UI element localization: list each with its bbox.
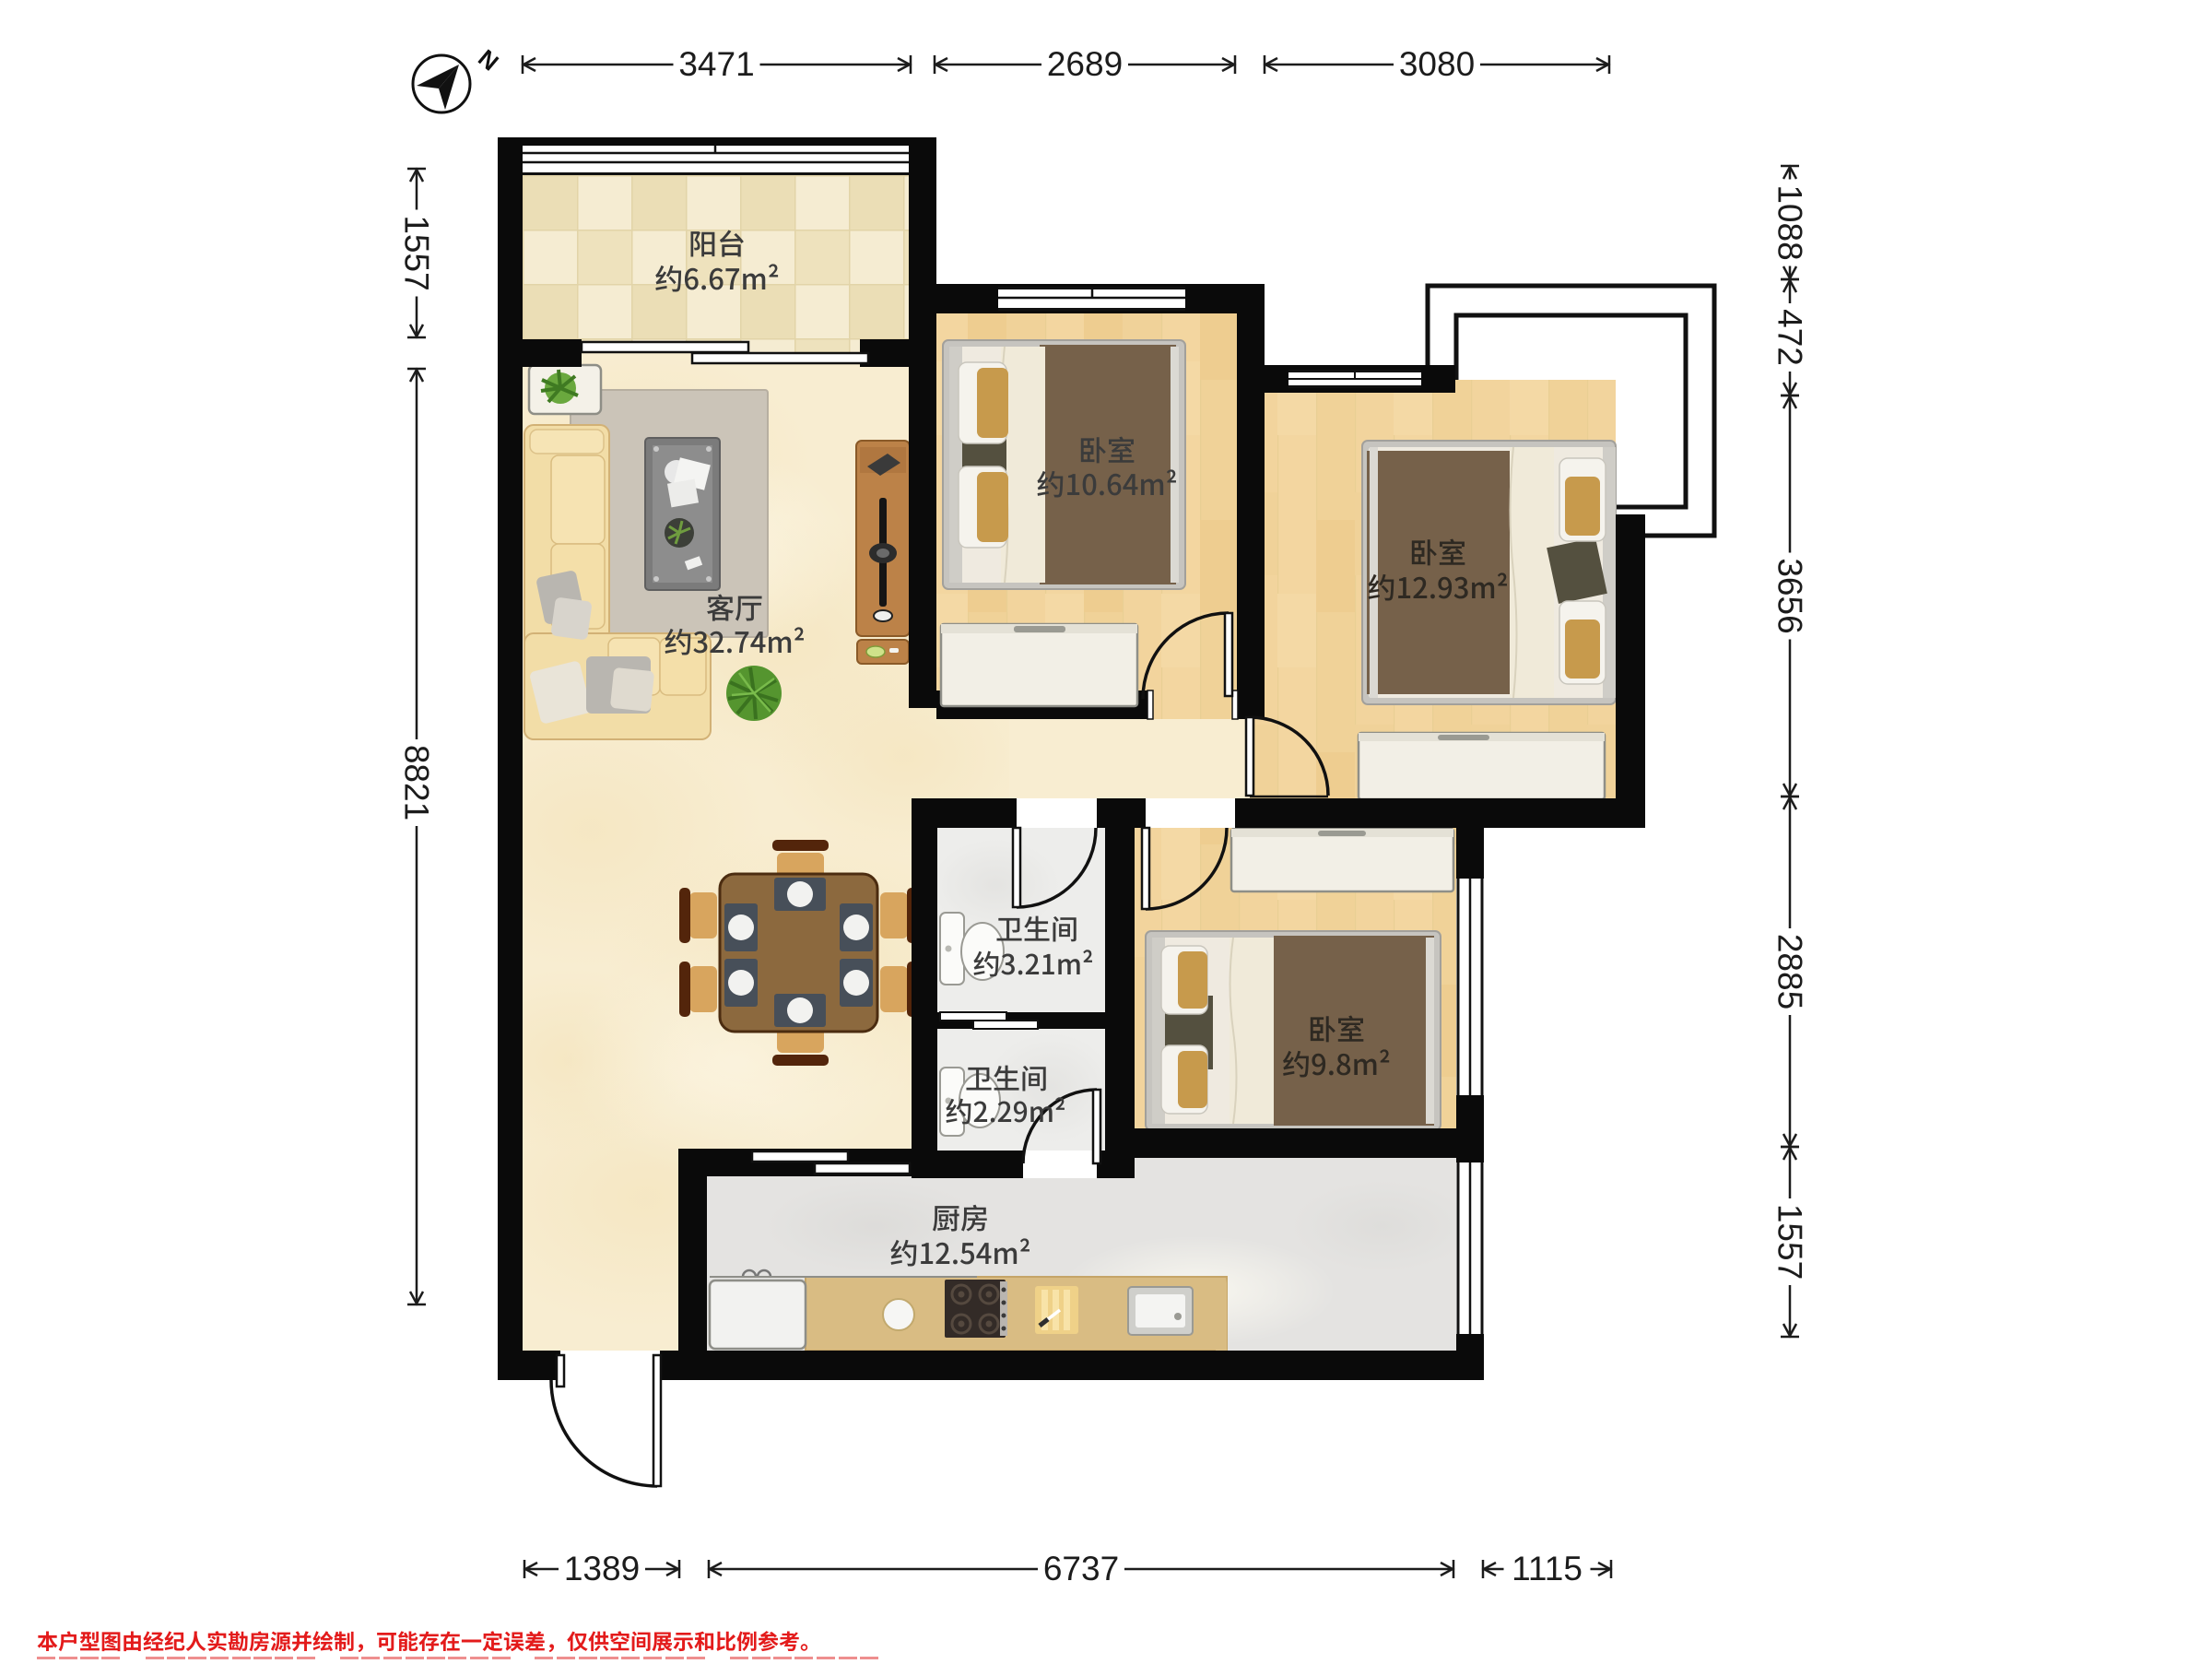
svg-text:1557: 1557 [1771,1204,1809,1280]
svg-text:8821: 8821 [398,745,436,820]
svg-text:3471: 3471 [678,45,754,83]
svg-text:1088: 1088 [1771,184,1809,260]
svg-text:472: 472 [1771,309,1809,366]
svg-text:1557: 1557 [398,215,436,290]
svg-text:1115: 1115 [1512,1550,1583,1587]
svg-text:6737: 6737 [1043,1550,1119,1587]
svg-text:2885: 2885 [1771,934,1809,1009]
svg-text:3656: 3656 [1771,558,1809,633]
svg-text:1389: 1389 [564,1550,640,1587]
svg-text:2689: 2689 [1047,45,1123,83]
svg-text:3080: 3080 [1399,45,1475,83]
